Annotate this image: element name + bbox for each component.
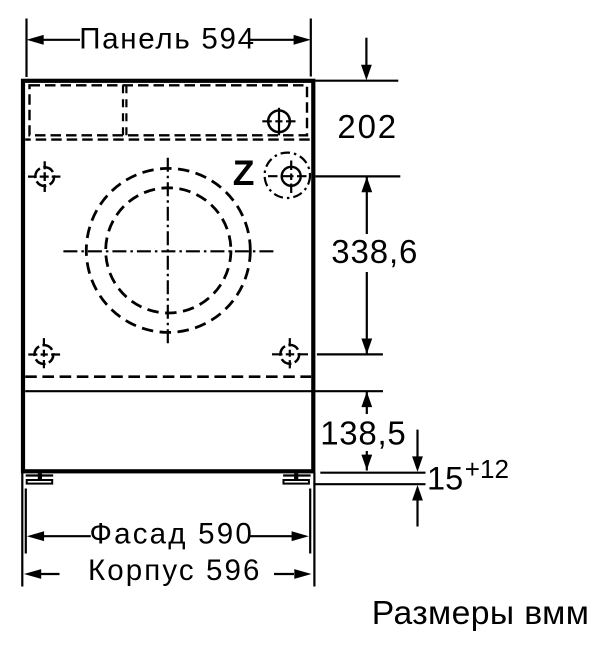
svg-text:338,6: 338,6 [331,233,418,270]
svg-text:Корпус 596: Корпус 596 [88,554,262,587]
svg-text:202: 202 [337,108,398,145]
svg-text:138,5: 138,5 [320,415,406,452]
svg-text:Панель 594: Панель 594 [79,22,256,55]
svg-text:Z: Z [233,153,255,193]
svg-text:Размеры вмм: Размеры вмм [372,594,590,632]
svg-text:Фасад 590: Фасад 590 [90,517,254,550]
svg-text:+12: +12 [465,454,509,484]
svg-text:15: 15 [427,461,463,497]
